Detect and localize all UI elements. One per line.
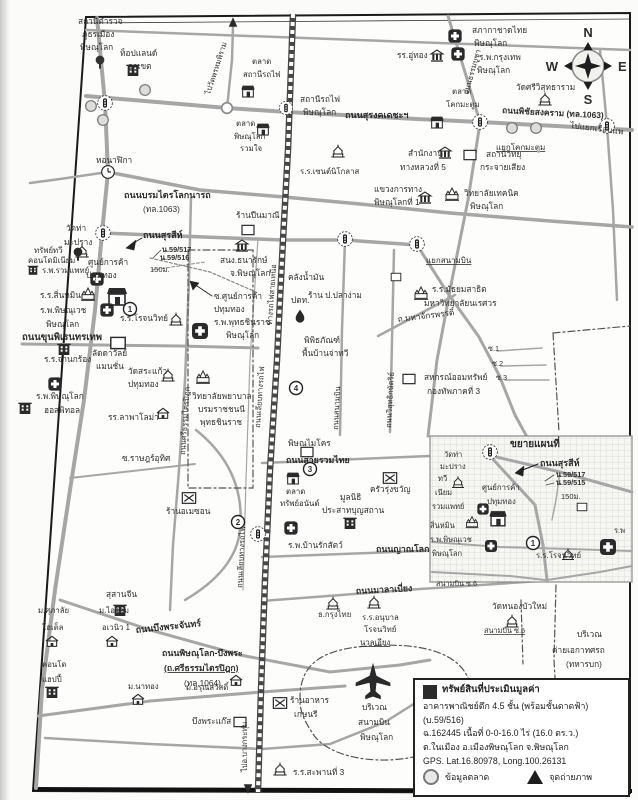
sq-icon — [403, 374, 415, 383]
map-label: พิษณุโลก — [432, 549, 462, 558]
market-icon — [107, 288, 127, 305]
map-label: รวมแพทย์ — [432, 502, 464, 511]
map-label: ร.พ — [614, 526, 625, 535]
map-label: อาเขต — [128, 61, 152, 71]
dot-icon — [507, 123, 518, 134]
map-label: สนามบิน — [358, 717, 390, 727]
numbered-marker: 1 — [527, 537, 540, 550]
map-label: มะปราง — [440, 462, 466, 471]
map-label: ครัวรุ่งขวัญ — [370, 484, 411, 495]
market-icon — [489, 511, 506, 526]
map-label: สนามบิน ซ.5 — [484, 626, 525, 635]
map-label: กองทัพภาคที่ 3 — [427, 385, 480, 396]
map-label: พิษณุโลก — [477, 65, 510, 76]
legend-line-area: ฉ.162445 เนื้อที่ 0-0-16.0 ไร่ (16.0 ตร.… — [423, 727, 622, 741]
map-label: พิษณุโลก — [80, 42, 113, 53]
map-label: ถนนขุนพิเรนทรเทพ — [22, 332, 102, 343]
map-label: ปทุมทอง — [128, 379, 159, 390]
dot-icon — [531, 123, 542, 134]
map-label: ร.ร.สิ่นหมิน — [40, 289, 81, 300]
map-label: ค่ายเอกาทศรถ — [552, 645, 605, 655]
map-label: บริเวณ — [362, 702, 387, 712]
map-label: สภากาชาดไทย — [472, 25, 527, 35]
map-label: รร.อู่ทอง — [397, 50, 428, 61]
map-label: ถนนพิษณุโลก-บึงพระ — [162, 647, 243, 659]
svg-text:1: 1 — [128, 305, 133, 314]
sq-icon — [242, 225, 254, 234]
map-label: พิษณุโลก — [470, 201, 503, 212]
sq-icon — [577, 503, 587, 510]
map-label: ตลาด — [252, 57, 271, 66]
map-label: ร.พ.พิษณุโลก — [36, 391, 84, 402]
market-icon — [241, 86, 254, 97]
map-label: ถนนสายรวมไทย — [286, 454, 350, 465]
cross-icon — [451, 47, 464, 60]
map-label: (ทหารบก) — [566, 659, 602, 669]
map-label: ถนนสุรงคเดชะฯ — [345, 110, 408, 121]
map-label: พิษณุโลก — [303, 107, 336, 118]
map-label: ร.พ.บ้านรักสัตว์ — [288, 540, 343, 550]
light-icon — [338, 232, 353, 247]
map-label: ร.ร.สะพานที่ 3 — [293, 766, 345, 777]
map-label: โฮเต็ล — [42, 622, 64, 632]
light-icon — [98, 96, 113, 111]
numbered-marker: 1 — [124, 303, 137, 316]
map-label: ร.ร.จ่านกร้อง — [44, 354, 91, 364]
map-label: ถนนสุรสีห์ — [143, 229, 183, 241]
map-label: สำนักงาน — [408, 148, 443, 158]
map-label: พิพิธภัณฑ์ — [304, 335, 340, 345]
legend-line-gps: GPS. Lat.16.80978, Long.100.26131 — [423, 755, 622, 769]
map-label: 150ม. — [561, 492, 581, 501]
compass-e-label: E — [618, 59, 627, 74]
bldg-icon — [343, 518, 356, 529]
map-label: แขวงการทาง — [374, 184, 422, 194]
map-label: คอนโดมิเนียม — [28, 256, 75, 265]
map-label: มูลนิธิ — [340, 492, 361, 503]
node-icon — [222, 103, 233, 114]
map-label: พุทธชินราช — [200, 417, 242, 428]
map-label: สิ่นหมิน — [430, 520, 455, 530]
clock-icon — [102, 166, 115, 179]
map-label: สหกรณ์ออมทรัพย์ — [424, 372, 488, 382]
map-label: ศูนย์การค้า — [482, 483, 520, 493]
dot-icon — [140, 85, 151, 96]
map-label: ร้านปืนมาณี — [236, 210, 280, 220]
map-label: ถนนสุรสีห์ — [540, 457, 580, 469]
map-label: แมนชั่น — [96, 360, 124, 371]
map-label: บริเวณ — [577, 629, 602, 639]
map-label: (ทล.1063) — [143, 204, 180, 214]
legend-line-ref: (บ.59/516) — [423, 714, 622, 728]
map-label: ท็อปแลนด์ — [120, 48, 157, 58]
map-label: พิษณุโลก — [360, 732, 393, 743]
map-label: ลัดดาวัลย์ — [92, 348, 127, 358]
legend-line-location: ต.ในเมือง อ.เมืองพิษณุโลก จ.พิษณุโลก — [423, 741, 622, 755]
map-label: สนง.ธนารักษ์ — [220, 255, 268, 265]
map-label: วัดท่า — [444, 450, 462, 459]
map-label: วิทยาลัยเทคนิค — [464, 188, 519, 198]
bldg-icon — [45, 687, 58, 698]
map-label: มหาวิทยาลัยนเรศวร — [424, 298, 497, 308]
map-label: ฮอสพิทอล — [44, 405, 80, 415]
map-label: ซ.2 — [492, 359, 503, 368]
map-label: ร้าน ป.ปลาง่าม — [308, 290, 362, 300]
map-label: ร.ร.โรจนวิทย์ — [536, 551, 581, 560]
cross-icon — [192, 323, 208, 339]
dot-icon — [98, 115, 109, 126]
map-label: วิทยาลัยพยาบาล — [192, 391, 252, 401]
map-label: ธ.กรุงไทย — [318, 610, 351, 619]
map-label: ร.ร.อนุบาล — [362, 613, 399, 622]
map-label: แยกสนามบิน — [426, 256, 472, 265]
sq-icon — [391, 273, 401, 280]
map-label: พิษณุโลก — [226, 330, 259, 341]
map-label: รร.ลาพาโลม่า — [108, 412, 159, 422]
map-label: ร.พ.พุทธชินราช — [214, 317, 271, 328]
bldg-icon — [18, 403, 31, 414]
compass-n-label: N — [583, 25, 592, 40]
map-label: พิษณุโลกที่ 1 — [374, 196, 420, 208]
map-label: สถานีตำรวจ — [78, 16, 123, 26]
scanned-map-page: สถานีตำรวจภูธรเมืองพิษณุโลกท็อปแลนด์อาเข… — [0, 0, 638, 800]
numbered-marker: 2 — [232, 516, 245, 529]
map-label: ซ.ศูนย์การค้า — [214, 291, 262, 302]
map-label: ปทุมทอง — [86, 270, 117, 281]
map-label: อเวนิว 1 — [102, 623, 130, 632]
map-label: ร.พ.รวมแพทย์ — [42, 266, 89, 275]
map-label: วัดท่า — [66, 223, 86, 233]
property-square-icon — [423, 685, 437, 699]
map-label: เนียม — [435, 488, 452, 497]
map-label: ม.นาทอง — [128, 682, 159, 691]
numbered-marker: 3 — [304, 463, 317, 476]
food-icon — [182, 493, 195, 504]
map-label: ถนนบรมไตรโลกนารถ — [124, 189, 211, 200]
map-label: โคกมะตูม — [446, 100, 480, 110]
legend-line-building: อาคารพาณิชย์ตึก 4.5 ชั้น (พร้อมชั้นดาดฟ้… — [423, 700, 622, 714]
map-label: วัดศรีวิสุทธาราม — [516, 82, 575, 93]
cross-icon — [100, 303, 113, 316]
map-label: คอนโด — [42, 660, 66, 669]
map-label: ม.อรุณสวัสดิ์ — [186, 681, 230, 692]
legend-key-photo: จุดถ่ายภาพ — [549, 770, 592, 784]
light-icon — [96, 226, 111, 241]
map-label: ร.ร.เซนต์นิโกลาส — [300, 167, 359, 176]
map-label: กระจายเสียง — [480, 162, 525, 172]
compass-w-label: W — [546, 59, 559, 74]
light-icon — [251, 527, 266, 542]
map-label: ม.ไอโฮม — [99, 606, 129, 615]
map-label: ทรัพย์อนันต์ — [280, 499, 319, 508]
bldg-icon — [28, 266, 39, 275]
map-label: พิษณุโลก — [46, 319, 79, 330]
market-data-icon — [423, 769, 439, 785]
cross-icon — [448, 29, 461, 42]
map-label: ร.ร.มัธยมสาธิต — [432, 284, 487, 294]
map-label: ขยายแผนที่ — [510, 436, 560, 450]
map-label: พิษณุโลก — [474, 38, 507, 49]
map-label: ร้านอาหาร — [290, 695, 330, 705]
map-label: บึงพระแก๊ส — [192, 716, 231, 726]
map-label: ร.พ.พิษณุเวช — [430, 535, 472, 544]
legend-box: ทรัพย์สินที่ประเมินมูลค่า อาคารพาณิชย์ตึ… — [413, 678, 630, 797]
map-label: โรจนวิทย์ — [364, 625, 396, 634]
svg-text:1: 1 — [531, 539, 536, 548]
map-label: ภูธรเมือง — [82, 29, 114, 40]
road — [501, 365, 546, 366]
map-label: จ.พิษณุโลก — [230, 268, 270, 279]
map-label: หอนาฬิกา — [96, 155, 132, 165]
map-label: สถานีวิทยุ — [486, 149, 522, 160]
map-label: นวลเอียง — [360, 638, 390, 647]
map-label: 150ม. — [150, 265, 170, 274]
map-label: วัดสระแก้ว — [128, 366, 167, 376]
cross-icon — [48, 377, 61, 390]
svg-text:4: 4 — [294, 384, 299, 393]
map-label: พิษณุไมโคร — [288, 438, 331, 449]
cross-icon — [284, 521, 297, 534]
map-label: ตลาด — [286, 487, 305, 496]
map-label: ประสาทบุญสถาน — [322, 505, 384, 516]
map-label: เกษนรี — [294, 709, 318, 719]
map-label: ร้านอเมซอน — [166, 506, 211, 516]
light-icon — [473, 115, 488, 130]
map-label: ร.พ.กรุงเทพ — [479, 52, 521, 63]
map-label: ทางหลวงที่ 5 — [400, 161, 446, 172]
map-label: ม.ศุภาลัย — [38, 606, 69, 615]
map-label: ซ.1 — [488, 344, 499, 353]
map-label: ร.พ.พิษณุเวช — [40, 305, 87, 316]
map-label: น.59/515 — [556, 478, 585, 487]
map-label: แฮปปี้ — [42, 673, 62, 684]
map-label: คลังน้ำมัน — [288, 271, 324, 282]
map-label: วัดหนองบัวใหม่ — [492, 601, 547, 611]
sq-icon — [111, 337, 125, 348]
numbered-marker: 4 — [290, 382, 303, 395]
compass-s-label: S — [584, 92, 593, 107]
map-label: บรมราชชนนี — [198, 404, 245, 414]
map-label: ซ.ราษฎร์อุทิศ — [122, 453, 171, 464]
market-icon — [286, 473, 299, 484]
map-label: ทวี — [438, 474, 447, 483]
map-label: (ถ.ศรีธรรมไตรปิฎก) — [164, 663, 239, 673]
legend-key-market: ข้อมูลตลาด — [445, 770, 489, 784]
light-icon — [483, 445, 498, 460]
map-label: น.59/516 — [160, 253, 189, 262]
map-label: ซ.3 — [496, 373, 507, 382]
map-label: ปตท. — [291, 295, 309, 305]
food-icon — [273, 698, 286, 709]
scan-edge-shadow — [0, 0, 10, 800]
map-label: ปทุมทอง — [487, 497, 516, 506]
map-label: ศูนย์การค้า — [88, 257, 128, 268]
map-label: พิษณุโลก — [234, 132, 265, 141]
photo-point-icon — [527, 770, 543, 784]
sq-icon — [464, 150, 476, 159]
map-label: สถานีรถไฟ — [243, 70, 281, 79]
svg-text:3: 3 — [308, 465, 313, 474]
map-label: มะปราง — [64, 237, 92, 247]
market-icon — [430, 117, 443, 128]
map-label: สนามบิน ซ.6 — [436, 579, 477, 588]
map-label: ไปอ.บางกระทุ่ม — [240, 722, 249, 773]
cross-icon — [600, 539, 616, 555]
svg-text:2: 2 — [236, 518, 241, 527]
cross-icon — [485, 540, 497, 552]
map-label: ปทุมทอง — [214, 304, 245, 315]
map-label: ทรัพย์ทวี — [34, 246, 63, 255]
dot-icon — [86, 101, 97, 112]
map-label: ตลาด — [236, 119, 255, 128]
legend-title: ทรัพย์สินที่ประเมินมูลค่า — [442, 684, 540, 696]
map-label: ถนนญาณโลก — [376, 543, 429, 555]
map-label: สุสานจีน — [106, 589, 137, 600]
light-icon — [279, 101, 292, 114]
light-icon — [410, 237, 425, 252]
map-label: รวมใจ — [240, 144, 262, 153]
map-label: สถานีรถไฟ — [300, 94, 340, 104]
map-label: พื้นบ้านจ่าทวี — [302, 347, 349, 358]
food-icon — [383, 473, 396, 484]
